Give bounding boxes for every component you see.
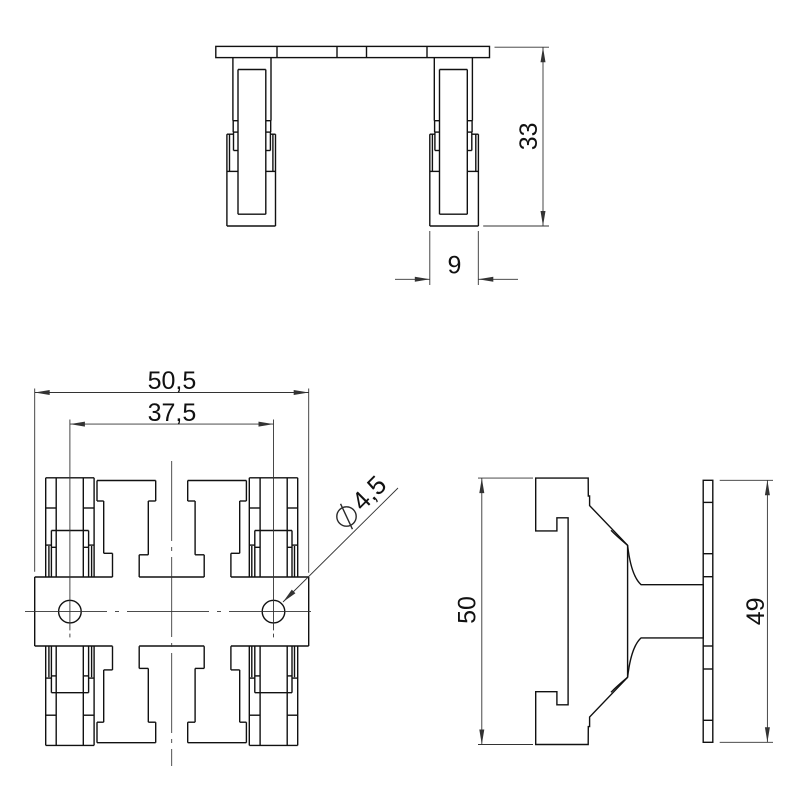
svg-text:50: 50 bbox=[454, 596, 482, 624]
svg-text:33: 33 bbox=[515, 122, 543, 150]
svg-text:49: 49 bbox=[742, 597, 770, 625]
svg-text:9: 9 bbox=[448, 252, 462, 280]
svg-text:50,5: 50,5 bbox=[148, 367, 197, 395]
svg-text:37,5: 37,5 bbox=[148, 399, 197, 427]
